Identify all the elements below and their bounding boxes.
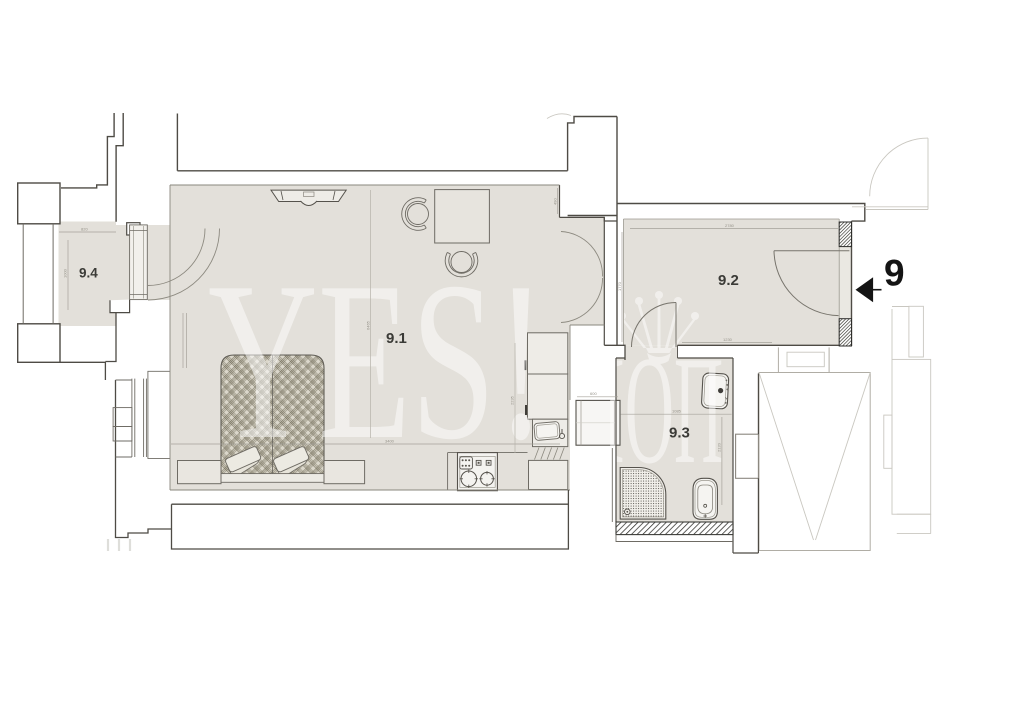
svg-text:9.4: 9.4	[79, 266, 98, 281]
svg-text:IOП: IOП	[602, 323, 723, 495]
svg-text:600: 600	[590, 391, 597, 396]
svg-text:9.3: 9.3	[669, 425, 690, 442]
svg-text:1770: 1770	[617, 281, 622, 291]
svg-text:2235: 2235	[510, 395, 515, 405]
svg-text:820: 820	[81, 227, 88, 232]
svg-text:1230: 1230	[723, 337, 733, 342]
svg-text:9.2: 9.2	[718, 272, 739, 289]
svg-text:6465: 6465	[366, 320, 371, 330]
svg-text:1085: 1085	[672, 409, 682, 414]
svg-text:490: 490	[553, 198, 558, 205]
svg-text:3400: 3400	[385, 439, 395, 444]
svg-text:9: 9	[884, 253, 905, 294]
svg-text:9.1: 9.1	[386, 330, 407, 347]
svg-text:YES!: YES!	[208, 235, 546, 486]
svg-text:2120: 2120	[717, 442, 722, 452]
svg-text:2780: 2780	[725, 223, 735, 228]
svg-text:1000: 1000	[63, 268, 68, 278]
